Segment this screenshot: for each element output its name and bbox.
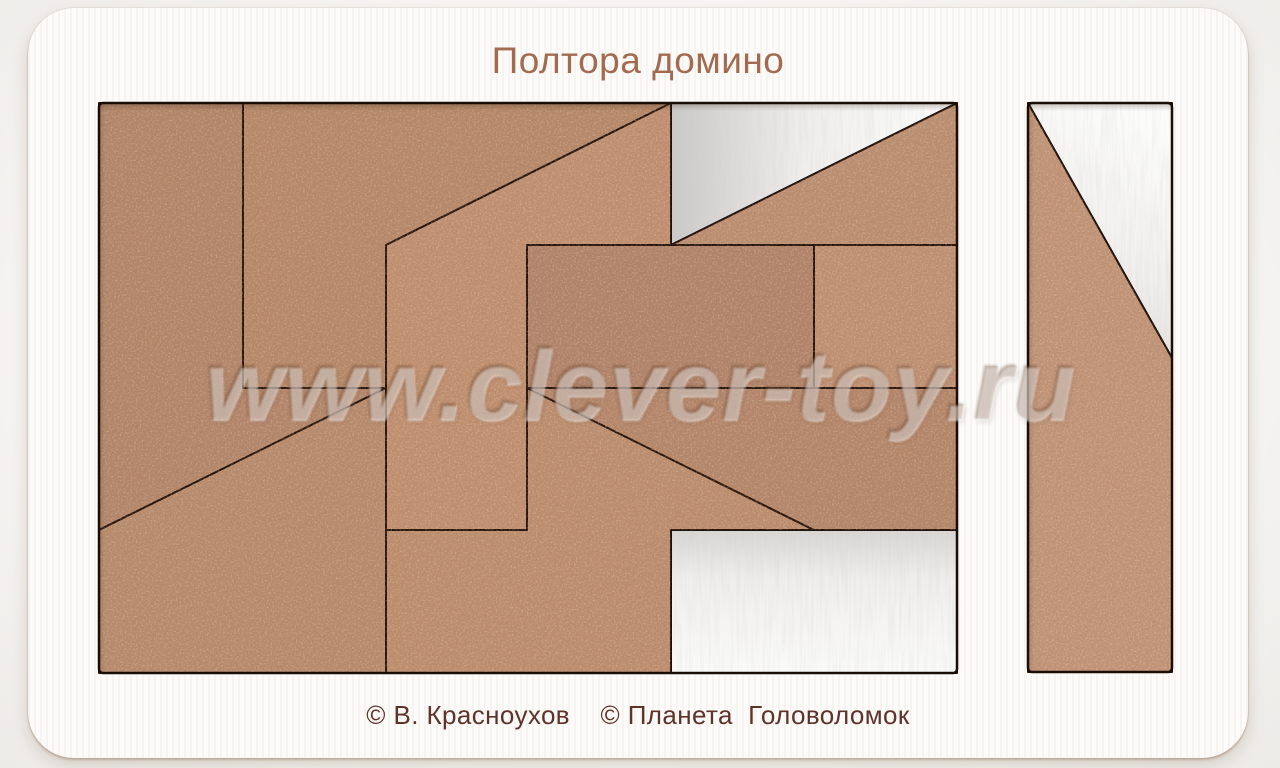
puzzle-graphic xyxy=(0,0,1280,768)
photo-background: { "page": { "background": "#f2f1ef" }, "… xyxy=(0,0,1280,768)
puzzle-title: Полтора домино xyxy=(28,40,1248,82)
copyright-caption: © В. Красноухов © Планета Головоломок xyxy=(28,700,1248,731)
